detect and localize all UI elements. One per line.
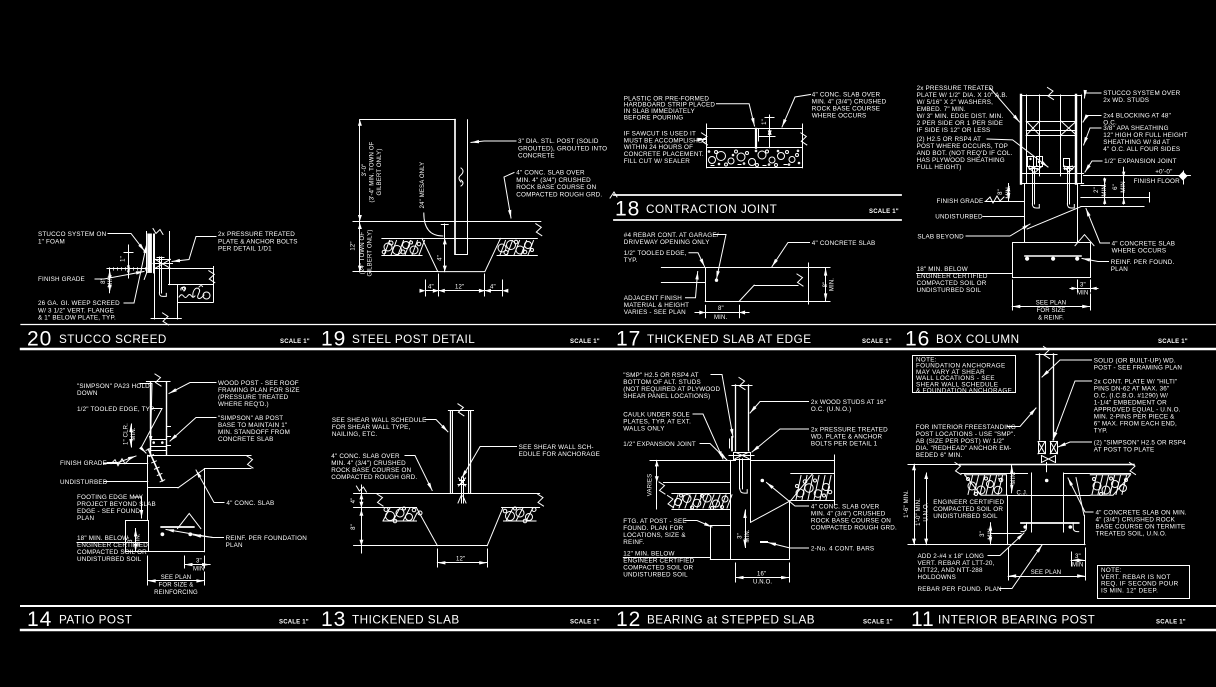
svg-text:MIN.: MIN. bbox=[108, 274, 114, 287]
svg-text:FILL CUT W/ SEALER: FILL CUT W/ SEALER bbox=[624, 158, 690, 165]
svg-text:PLAN: PLAN bbox=[1111, 266, 1128, 273]
svg-text:12" HIGH OR FULL HEIGHT: 12" HIGH OR FULL HEIGHT bbox=[1103, 132, 1188, 139]
svg-text:SHEATHING W/ 8d AT: SHEATHING W/ 8d AT bbox=[1103, 139, 1170, 146]
svg-text:MIN: MIN bbox=[1072, 563, 1083, 569]
svg-text:2x CONT. PLATE W/ "HILTI": 2x CONT. PLATE W/ "HILTI" bbox=[1094, 379, 1178, 386]
svg-text:MIN.: MIN. bbox=[830, 278, 836, 291]
svg-text:"SMP" H2.5 OR RSP4 AT: "SMP" H2.5 OR RSP4 AT bbox=[623, 372, 698, 379]
svg-text:4" (3/4") CRUSHED ROCK: 4" (3/4") CRUSHED ROCK bbox=[1096, 517, 1176, 524]
svg-text:POST LOCATIONS - USE "SMP".: POST LOCATIONS - USE "SMP". bbox=[916, 431, 1016, 438]
svg-text:4": 4" bbox=[999, 475, 1005, 481]
svg-text:PATIO POST: PATIO POST bbox=[59, 614, 132, 627]
svg-text:(24" TOWN OF: (24" TOWN OF bbox=[360, 232, 366, 275]
svg-text:8": 8" bbox=[718, 306, 724, 312]
svg-text:BOTTOM OF ALT. STUDS: BOTTOM OF ALT. STUDS bbox=[623, 379, 701, 386]
svg-text:3": 3" bbox=[1075, 554, 1081, 560]
svg-text:HOLDOWNS: HOLDOWNS bbox=[918, 574, 957, 581]
svg-text:THICKENED SLAB: THICKENED SLAB bbox=[352, 614, 460, 627]
svg-text:SCALE 1": SCALE 1" bbox=[863, 620, 893, 626]
svg-text:FOR INTERIOR FREESTANDING: FOR INTERIOR FREESTANDING bbox=[916, 424, 1016, 431]
svg-text:WHERE OCCURS: WHERE OCCURS bbox=[1112, 248, 1167, 255]
svg-text:2x PRESSURE TREATED: 2x PRESSURE TREATED bbox=[917, 85, 994, 92]
svg-text:STUCCO SYSTEM OVER: STUCCO SYSTEM OVER bbox=[1103, 90, 1180, 97]
svg-text:16": 16" bbox=[757, 572, 766, 578]
svg-text:PROJECT BEYOND SLAB: PROJECT BEYOND SLAB bbox=[77, 501, 156, 508]
svg-text:MATERIAL & HEIGHT: MATERIAL & HEIGHT bbox=[624, 302, 689, 309]
svg-text:AT POST TO PLATE: AT POST TO PLATE bbox=[1094, 447, 1155, 454]
svg-text:24" MESA ONLY: 24" MESA ONLY bbox=[420, 162, 426, 209]
svg-text:+0'-0": +0'-0" bbox=[1155, 169, 1172, 176]
svg-text:1/2" EXPANSION JOINT: 1/2" EXPANSION JOINT bbox=[1104, 158, 1177, 165]
svg-text:4" CONCRETE SLAB ON MIN.: 4" CONCRETE SLAB ON MIN. bbox=[1096, 510, 1187, 517]
svg-text:2x WOOD STUDS AT 16": 2x WOOD STUDS AT 16" bbox=[811, 399, 886, 406]
svg-text:AND BOT. (NOT REQ'D IF COL.: AND BOT. (NOT REQ'D IF COL. bbox=[917, 150, 1013, 157]
svg-text:MIN.: MIN. bbox=[1011, 471, 1017, 484]
svg-text:VARIES: VARIES bbox=[648, 474, 654, 496]
svg-text:MIN.: MIN. bbox=[136, 533, 142, 546]
svg-text:12": 12" bbox=[350, 241, 356, 250]
svg-text:WD. PLATE & ANCHOR: WD. PLATE & ANCHOR bbox=[811, 434, 883, 441]
svg-text:SCALE 1": SCALE 1" bbox=[862, 339, 892, 345]
svg-text:REBAR PER FOUND. PLAN: REBAR PER FOUND. PLAN bbox=[918, 586, 1003, 593]
svg-text:4" CONC. SLAB OVER: 4" CONC. SLAB OVER bbox=[516, 170, 585, 177]
svg-text:FINISH GRADE: FINISH GRADE bbox=[60, 460, 107, 467]
svg-text:8": 8" bbox=[998, 189, 1004, 195]
svg-text:26 GA. GI. WEEP SCREED: 26 GA. GI. WEEP SCREED bbox=[38, 300, 120, 307]
svg-text:POST WHERE OCCURS, TOP: POST WHERE OCCURS, TOP bbox=[917, 143, 1008, 150]
svg-text:12": 12" bbox=[456, 557, 465, 563]
svg-text:4": 4" bbox=[351, 498, 357, 504]
svg-text:UNDISTURBED SOIL: UNDISTURBED SOIL bbox=[933, 513, 998, 520]
svg-text:REINF. PER FOUNDATION: REINF. PER FOUNDATION bbox=[226, 535, 308, 542]
svg-text:BEFORE POURING: BEFORE POURING bbox=[624, 114, 684, 121]
svg-text:UNDISTURBED SOIL: UNDISTURBED SOIL bbox=[623, 572, 688, 579]
svg-text:FOUND. PLAN FOR: FOUND. PLAN FOR bbox=[623, 525, 683, 532]
svg-text:STUCCO SCREED: STUCCO SCREED bbox=[59, 333, 167, 346]
svg-text:SLAB BEYOND: SLAB BEYOND bbox=[917, 234, 964, 241]
svg-text:4" CONCRETE SLAB: 4" CONCRETE SLAB bbox=[1112, 241, 1176, 248]
svg-text:(PRESSURE TREATED: (PRESSURE TREATED bbox=[218, 394, 289, 401]
svg-text:13: 13 bbox=[321, 608, 346, 631]
svg-text:PINS DN-62 AT MAX. 36": PINS DN-62 AT MAX. 36" bbox=[1094, 386, 1170, 393]
svg-text:PLAN: PLAN bbox=[226, 542, 243, 549]
svg-text:U.N.O.: U.N.O. bbox=[923, 502, 929, 521]
svg-text:(3'-4" MIN. TOWN OF: (3'-4" MIN. TOWN OF bbox=[370, 141, 376, 202]
svg-text:SOLID (OR BUILT-UP) WD.: SOLID (OR BUILT-UP) WD. bbox=[1094, 358, 1176, 365]
svg-text:CONCRETE SLAB: CONCRETE SLAB bbox=[218, 436, 274, 443]
svg-text:IF SIDE IS 12" OR LESS: IF SIDE IS 12" OR LESS bbox=[917, 127, 991, 134]
svg-text:ROCK BASE COURSE: ROCK BASE COURSE bbox=[812, 106, 880, 113]
svg-text:1'-6" MIN.: 1'-6" MIN. bbox=[904, 490, 910, 518]
svg-text:2x PRESSURE TREATED: 2x PRESSURE TREATED bbox=[811, 427, 888, 434]
svg-text:(NOT REQUIRED AT PLYWOOD: (NOT REQUIRED AT PLYWOOD bbox=[623, 386, 720, 393]
svg-text:2x4 BLOCKING AT 48": 2x4 BLOCKING AT 48" bbox=[1103, 113, 1171, 120]
svg-text:REINF.: REINF. bbox=[623, 539, 644, 546]
svg-text:ROCK BASE COURSE ON: ROCK BASE COURSE ON bbox=[811, 518, 891, 525]
svg-text:2x PRESSURE TREATED: 2x PRESSURE TREATED bbox=[218, 231, 295, 238]
svg-text:COMPACTED ROUGH GRD.: COMPACTED ROUGH GRD. bbox=[331, 474, 417, 481]
svg-text:GILBERT ONLY): GILBERT ONLY) bbox=[368, 230, 374, 277]
svg-text:TREATED SOIL, U.N.O.: TREATED SOIL, U.N.O. bbox=[1096, 531, 1167, 538]
svg-text:GROUTED), GROUTED INTO: GROUTED), GROUTED INTO bbox=[518, 145, 607, 152]
svg-text:1'-0" MIN.: 1'-0" MIN. bbox=[916, 498, 922, 526]
svg-text:1/2" EXPANSION JOINT: 1/2" EXPANSION JOINT bbox=[623, 441, 696, 448]
svg-text:BOLTS PER DETAIL 1: BOLTS PER DETAIL 1 bbox=[811, 441, 878, 448]
svg-text:FULL HEIGHT): FULL HEIGHT) bbox=[917, 164, 962, 171]
svg-text:18" MIN. BELOW: 18" MIN. BELOW bbox=[917, 266, 968, 273]
svg-text:WALLS ONLY: WALLS ONLY bbox=[623, 426, 665, 433]
svg-text:EMBED. 7" MIN.: EMBED. 7" MIN. bbox=[917, 106, 966, 113]
svg-text:W/ 3 1/2" VERT. FLANGE: W/ 3 1/2" VERT. FLANGE bbox=[38, 307, 114, 314]
svg-text:O.C. (I.C.B.O. #1290) W/: O.C. (I.C.B.O. #1290) W/ bbox=[1094, 393, 1168, 400]
svg-text:IS MIN. 12" DEEP.: IS MIN. 12" DEEP. bbox=[1101, 587, 1158, 594]
svg-text:SEE PLAN: SEE PLAN bbox=[1036, 301, 1067, 307]
svg-text:ENGINEER CERTIFIED: ENGINEER CERTIFIED bbox=[933, 499, 1004, 506]
svg-text:1": 1" bbox=[762, 119, 768, 125]
svg-text:17: 17 bbox=[616, 328, 641, 351]
svg-text:SHEAR PANEL LOCATIONS): SHEAR PANEL LOCATIONS) bbox=[623, 393, 710, 400]
svg-text:PLATE & ANCHOR BOLTS: PLATE & ANCHOR BOLTS bbox=[218, 238, 298, 245]
svg-text:SCALE 1": SCALE 1" bbox=[280, 339, 310, 345]
svg-text:GILBERT ONLY): GILBERT ONLY) bbox=[377, 149, 383, 196]
svg-text:1" FOAM: 1" FOAM bbox=[38, 238, 65, 245]
svg-text:VERT. REBAR AT LTT-20,: VERT. REBAR AT LTT-20, bbox=[918, 560, 995, 567]
svg-text:3/8" APA SHEATHING: 3/8" APA SHEATHING bbox=[1103, 125, 1168, 132]
svg-text:"SIMPSON" PA23 HOLD: "SIMPSON" PA23 HOLD bbox=[77, 383, 150, 390]
svg-text:3": 3" bbox=[128, 537, 134, 543]
svg-text:STUCCO SYSTEM ON: STUCCO SYSTEM ON bbox=[38, 231, 107, 238]
svg-text:UNDISTURBED: UNDISTURBED bbox=[935, 214, 983, 221]
svg-text:4": 4" bbox=[438, 255, 444, 261]
svg-text:SEE SHEAR WALL SCHEDULE: SEE SHEAR WALL SCHEDULE bbox=[332, 417, 427, 424]
svg-text:COMPACTED ROUGH GRD.: COMPACTED ROUGH GRD. bbox=[811, 525, 897, 532]
svg-text:4" CONC. SLAB OVER: 4" CONC. SLAB OVER bbox=[811, 504, 880, 511]
svg-text:EDGE - SEE FOUND.: EDGE - SEE FOUND. bbox=[77, 508, 142, 515]
svg-text:ENGINEER CERTIFIED: ENGINEER CERTIFIED bbox=[623, 558, 694, 565]
svg-text:& 1" BELOW PLATE, TYP.: & 1" BELOW PLATE, TYP. bbox=[38, 315, 116, 322]
svg-text:INTERIOR BEARING POST: INTERIOR BEARING POST bbox=[938, 614, 1095, 627]
svg-text:8": 8" bbox=[823, 282, 829, 288]
svg-text:MIN.: MIN. bbox=[745, 529, 751, 542]
svg-text:COMPACTED SOIL OR: COMPACTED SOIL OR bbox=[623, 565, 693, 572]
svg-text:BASE TO MAINTAIN 1": BASE TO MAINTAIN 1" bbox=[218, 422, 287, 429]
svg-text:DRIVEWAY OPENING ONLY: DRIVEWAY OPENING ONLY bbox=[624, 239, 710, 246]
svg-text:12" MIN. BELOW: 12" MIN. BELOW bbox=[623, 551, 674, 558]
svg-text:1/2" TOOLED EDGE,: 1/2" TOOLED EDGE, bbox=[624, 250, 687, 257]
svg-text:MIN: MIN bbox=[1121, 181, 1127, 192]
svg-text:& REINF.: & REINF. bbox=[1038, 316, 1064, 322]
svg-text:MIN. STANDOFF FROM: MIN. STANDOFF FROM bbox=[218, 429, 290, 436]
svg-text:CONCRETE: CONCRETE bbox=[518, 153, 555, 160]
svg-text:UNDISTURBED SOIL: UNDISTURBED SOIL bbox=[917, 287, 982, 294]
svg-text:BEARING at STEPPED SLAB: BEARING at STEPPED SLAB bbox=[647, 614, 815, 627]
svg-text:PER DETAIL 1/D1: PER DETAIL 1/D1 bbox=[218, 246, 272, 253]
svg-text:BOX COLUMN: BOX COLUMN bbox=[936, 333, 1020, 346]
svg-text:FINISH GRADE: FINISH GRADE bbox=[937, 198, 984, 205]
svg-text:PLATES, TYP. AT EXT.: PLATES, TYP. AT EXT. bbox=[623, 419, 691, 426]
svg-text:BEDED 6" MIN.: BEDED 6" MIN. bbox=[916, 452, 963, 459]
svg-text:BASE COURSE ON TERMITE: BASE COURSE ON TERMITE bbox=[1096, 524, 1186, 531]
svg-text:U.N.O.: U.N.O. bbox=[753, 580, 772, 586]
svg-text:FTG. AT POST - SEE: FTG. AT POST - SEE bbox=[623, 518, 686, 525]
svg-text:SCALE 1": SCALE 1" bbox=[1158, 339, 1188, 345]
svg-text:1/2" TOOLED EDGE, TYP.: 1/2" TOOLED EDGE, TYP. bbox=[77, 406, 156, 413]
svg-text:APPROVED EQUAL - U.N.O.: APPROVED EQUAL - U.N.O. bbox=[1094, 407, 1181, 414]
svg-text:12: 12 bbox=[616, 608, 641, 631]
svg-text:CAULK UNDER SOLE: CAULK UNDER SOLE bbox=[623, 412, 690, 419]
svg-text:3" DIA. STL. POST (SOLID: 3" DIA. STL. POST (SOLID bbox=[518, 138, 599, 145]
svg-text:(2) H2.5 OR RSP4 AT: (2) H2.5 OR RSP4 AT bbox=[917, 136, 982, 143]
svg-text:UNDISTURBED SOIL: UNDISTURBED SOIL bbox=[77, 556, 142, 563]
svg-text:UNDISTURBED: UNDISTURBED bbox=[60, 479, 108, 486]
svg-text:VARIES - SEE PLAN: VARIES - SEE PLAN bbox=[624, 309, 686, 316]
svg-text:SCALE 1": SCALE 1" bbox=[570, 620, 600, 626]
svg-text:MIN. 2-PINS PER PIECE &: MIN. 2-PINS PER PIECE & bbox=[1094, 414, 1175, 421]
svg-text:COMPACTED SOIL OR: COMPACTED SOIL OR bbox=[917, 280, 987, 287]
svg-text:MIN.: MIN. bbox=[131, 427, 137, 440]
svg-text:WHERE OCCURS: WHERE OCCURS bbox=[812, 113, 867, 120]
svg-text:4" CONC. SLAB OVER: 4" CONC. SLAB OVER bbox=[331, 453, 400, 460]
svg-text:2-No. 4 CONT. BARS: 2-No. 4 CONT. BARS bbox=[811, 546, 874, 553]
svg-text:WHERE REQ'D.): WHERE REQ'D.) bbox=[218, 401, 269, 408]
svg-text:FOR SIZE &: FOR SIZE & bbox=[159, 582, 194, 588]
svg-text:CONTRACTION JOINT: CONTRACTION JOINT bbox=[646, 203, 777, 216]
svg-text:1-1/4" EMBEDMENT OR: 1-1/4" EMBEDMENT OR bbox=[1094, 400, 1167, 407]
svg-text:SEE PLAN: SEE PLAN bbox=[161, 575, 192, 581]
svg-text:SEE SHEAR WALL SCH-: SEE SHEAR WALL SCH- bbox=[519, 444, 594, 451]
svg-text:MIN. 4" (3/4") CRUSHED: MIN. 4" (3/4") CRUSHED bbox=[812, 99, 887, 106]
svg-text:W/ 5/16" X 2" WASHERS,: W/ 5/16" X 2" WASHERS, bbox=[917, 99, 994, 106]
svg-text:4" CONCRETE SLAB: 4" CONCRETE SLAB bbox=[812, 240, 876, 247]
svg-text:2x WD. STUDS: 2x WD. STUDS bbox=[1103, 97, 1149, 104]
svg-text:#4 REBAR CONT. AT GARAGE/: #4 REBAR CONT. AT GARAGE/ bbox=[624, 232, 719, 239]
svg-text:18" MIN. BELOW: 18" MIN. BELOW bbox=[77, 535, 128, 542]
svg-text:W/ 3" MIN. EDGE DIST. MIN.: W/ 3" MIN. EDGE DIST. MIN. bbox=[917, 113, 1004, 120]
svg-text:WOOD POST - SEE ROOF: WOOD POST - SEE ROOF bbox=[218, 380, 299, 387]
svg-text:4": 4" bbox=[490, 285, 496, 291]
svg-text:14: 14 bbox=[27, 608, 52, 631]
svg-text:3": 3" bbox=[980, 531, 986, 537]
svg-text:ADJACENT FINISH: ADJACENT FINISH bbox=[624, 295, 682, 302]
svg-text:"SIMPSON" AB POST: "SIMPSON" AB POST bbox=[218, 415, 283, 422]
svg-text:MIN.: MIN. bbox=[1006, 185, 1012, 198]
svg-text:NAILING, ETC.: NAILING, ETC. bbox=[332, 431, 377, 438]
svg-text:MIN. 4" (3/4") CRUSHED: MIN. 4" (3/4") CRUSHED bbox=[331, 460, 406, 467]
svg-text:8": 8" bbox=[101, 278, 107, 284]
svg-text:(2) "SIMPSON" H2.5 OR RSP4: (2) "SIMPSON" H2.5 OR RSP4 bbox=[1094, 440, 1186, 447]
svg-text:4": 4" bbox=[428, 285, 434, 291]
svg-text:DIA. "REDHEAD" ANCHOR EM-: DIA. "REDHEAD" ANCHOR EM- bbox=[916, 445, 1012, 452]
svg-text:SCALE 1": SCALE 1" bbox=[869, 209, 899, 215]
svg-text:2": 2" bbox=[1094, 187, 1100, 193]
svg-text:4" CONC. SLAB: 4" CONC. SLAB bbox=[226, 500, 274, 507]
svg-text:3": 3" bbox=[738, 533, 744, 539]
svg-text:COMPACTED ROUGH GRD.: COMPACTED ROUGH GRD. bbox=[516, 192, 602, 199]
svg-text:ENGINEER CERTIFIED: ENGINEER CERTIFIED bbox=[917, 273, 988, 280]
svg-text:ROCK BASE COURSE ON: ROCK BASE COURSE ON bbox=[331, 467, 411, 474]
svg-text:POST - SEE FRAMING PLAN: POST - SEE FRAMING PLAN bbox=[1094, 365, 1183, 372]
svg-text:TYP.: TYP. bbox=[624, 257, 638, 264]
svg-text:AB (SIZE PER POST) W/ 1/2": AB (SIZE PER POST) W/ 1/2" bbox=[916, 438, 1005, 445]
svg-text:STEEL POST DETAIL: STEEL POST DETAIL bbox=[352, 333, 475, 346]
svg-text:COMPACTED SOIL OR: COMPACTED SOIL OR bbox=[933, 506, 1003, 513]
svg-text:MIN. 4" (3/4") CRUSHED: MIN. 4" (3/4") CRUSHED bbox=[811, 511, 886, 518]
svg-text:3": 3" bbox=[196, 559, 202, 565]
svg-text:6": 6" bbox=[1113, 184, 1119, 190]
svg-text:O.C. (U.N.O.): O.C. (U.N.O.) bbox=[811, 406, 851, 413]
svg-text:FINISH GRADE: FINISH GRADE bbox=[38, 276, 85, 283]
svg-text:8": 8" bbox=[351, 524, 357, 530]
svg-text:REINFORCING: REINFORCING bbox=[154, 590, 198, 596]
svg-text:TYP.: TYP. bbox=[1094, 428, 1108, 435]
svg-text:SCALE 1": SCALE 1" bbox=[1156, 620, 1186, 626]
svg-text:4" O.C. ALL FOUR SIDES: 4" O.C. ALL FOUR SIDES bbox=[1103, 146, 1180, 153]
svg-text:FOR SIZE: FOR SIZE bbox=[1037, 308, 1066, 314]
svg-text:FRAMING PLAN FOR SIZE: FRAMING PLAN FOR SIZE bbox=[218, 387, 300, 394]
svg-text:SEE PLAN: SEE PLAN bbox=[1031, 570, 1062, 576]
svg-text:SCALE 1": SCALE 1" bbox=[570, 339, 600, 345]
svg-text:16: 16 bbox=[905, 328, 930, 351]
svg-text:THICKENED SLAB AT EDGE: THICKENED SLAB AT EDGE bbox=[647, 333, 812, 346]
svg-text:FINISH FLOOR: FINISH FLOOR bbox=[1134, 178, 1181, 185]
svg-text:11: 11 bbox=[911, 608, 935, 631]
svg-text:SCALE 1": SCALE 1" bbox=[279, 620, 309, 626]
svg-text:COMPACTED SOIL OR: COMPACTED SOIL OR bbox=[77, 549, 147, 556]
svg-text:1": 1" bbox=[121, 256, 127, 262]
svg-text:MIN. 4" (3/4") CRUSHED: MIN. 4" (3/4") CRUSHED bbox=[516, 177, 591, 184]
svg-text:6" MAX. FROM EACH END,: 6" MAX. FROM EACH END, bbox=[1094, 421, 1177, 428]
svg-text:3'-0": 3'-0" bbox=[362, 164, 368, 177]
svg-text:2 PER SIDE OR 1 PER SIDE: 2 PER SIDE OR 1 PER SIDE bbox=[917, 120, 1004, 127]
svg-text:3": 3" bbox=[1080, 283, 1086, 289]
svg-text:MIN.: MIN. bbox=[714, 315, 727, 321]
svg-text:MIN: MIN bbox=[1077, 291, 1088, 297]
svg-text:DOWN: DOWN bbox=[77, 390, 98, 397]
svg-text:EDULE FOR ANCHORAGE: EDULE FOR ANCHORAGE bbox=[519, 451, 600, 458]
svg-text:MIN: MIN bbox=[193, 567, 204, 573]
svg-text:FOR SHEAR WALL TYPE,: FOR SHEAR WALL TYPE, bbox=[332, 424, 411, 431]
svg-text:REINF. PER FOUND.: REINF. PER FOUND. bbox=[1111, 259, 1175, 266]
svg-text:& FOUNDATION ANCHORAGE.: & FOUNDATION ANCHORAGE. bbox=[916, 388, 1014, 395]
svg-text:18: 18 bbox=[615, 198, 640, 221]
svg-text:4" CONC. SLAB OVER: 4" CONC. SLAB OVER bbox=[812, 92, 881, 99]
svg-text:ADD 2-#4 x 18" LONG: ADD 2-#4 x 18" LONG bbox=[918, 553, 985, 560]
svg-text:19: 19 bbox=[321, 328, 346, 351]
svg-text:20: 20 bbox=[27, 328, 52, 351]
svg-text:12": 12" bbox=[455, 285, 464, 291]
svg-text:PLAN: PLAN bbox=[77, 515, 94, 522]
svg-text:ROCK BASE COURSE ON: ROCK BASE COURSE ON bbox=[516, 184, 596, 191]
svg-text:HAS PLYWOOD SHEATHING: HAS PLYWOOD SHEATHING bbox=[917, 157, 1005, 164]
svg-text:NTT22, AND NTT-288: NTT22, AND NTT-288 bbox=[918, 567, 983, 574]
svg-text:LOCATIONS, SIZE &: LOCATIONS, SIZE & bbox=[623, 532, 686, 539]
svg-text:1" CLR.: 1" CLR. bbox=[124, 423, 130, 445]
svg-text:MIN.: MIN. bbox=[1102, 183, 1108, 196]
